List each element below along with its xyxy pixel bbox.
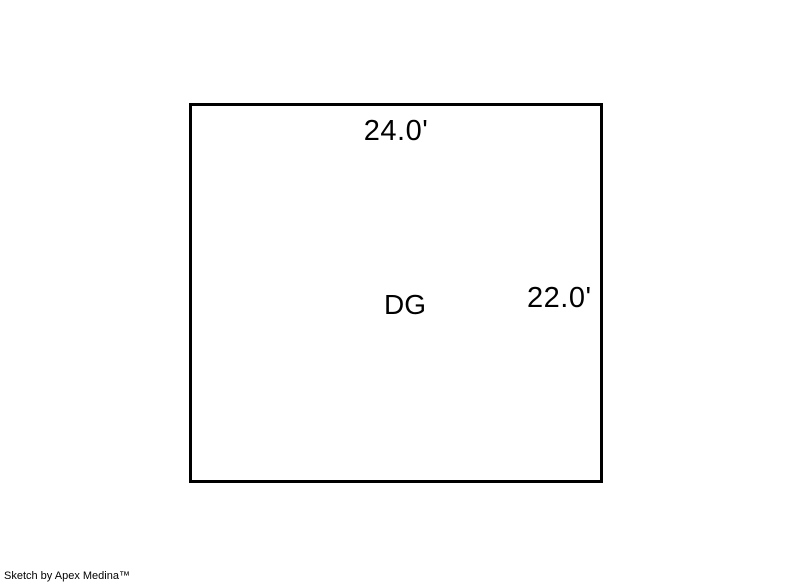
- structure-type-label: DG: [384, 291, 426, 319]
- right-dimension-label: 22.0': [527, 284, 591, 313]
- sketch-canvas: 24.0' 22.0' DG Sketch by Apex Medina™: [0, 0, 800, 587]
- sketch-credit: Sketch by Apex Medina™: [4, 570, 130, 582]
- top-dimension-label: 24.0': [189, 117, 603, 146]
- sketch-page: { "sketch": { "structure_label": "DG", "…: [0, 0, 800, 587]
